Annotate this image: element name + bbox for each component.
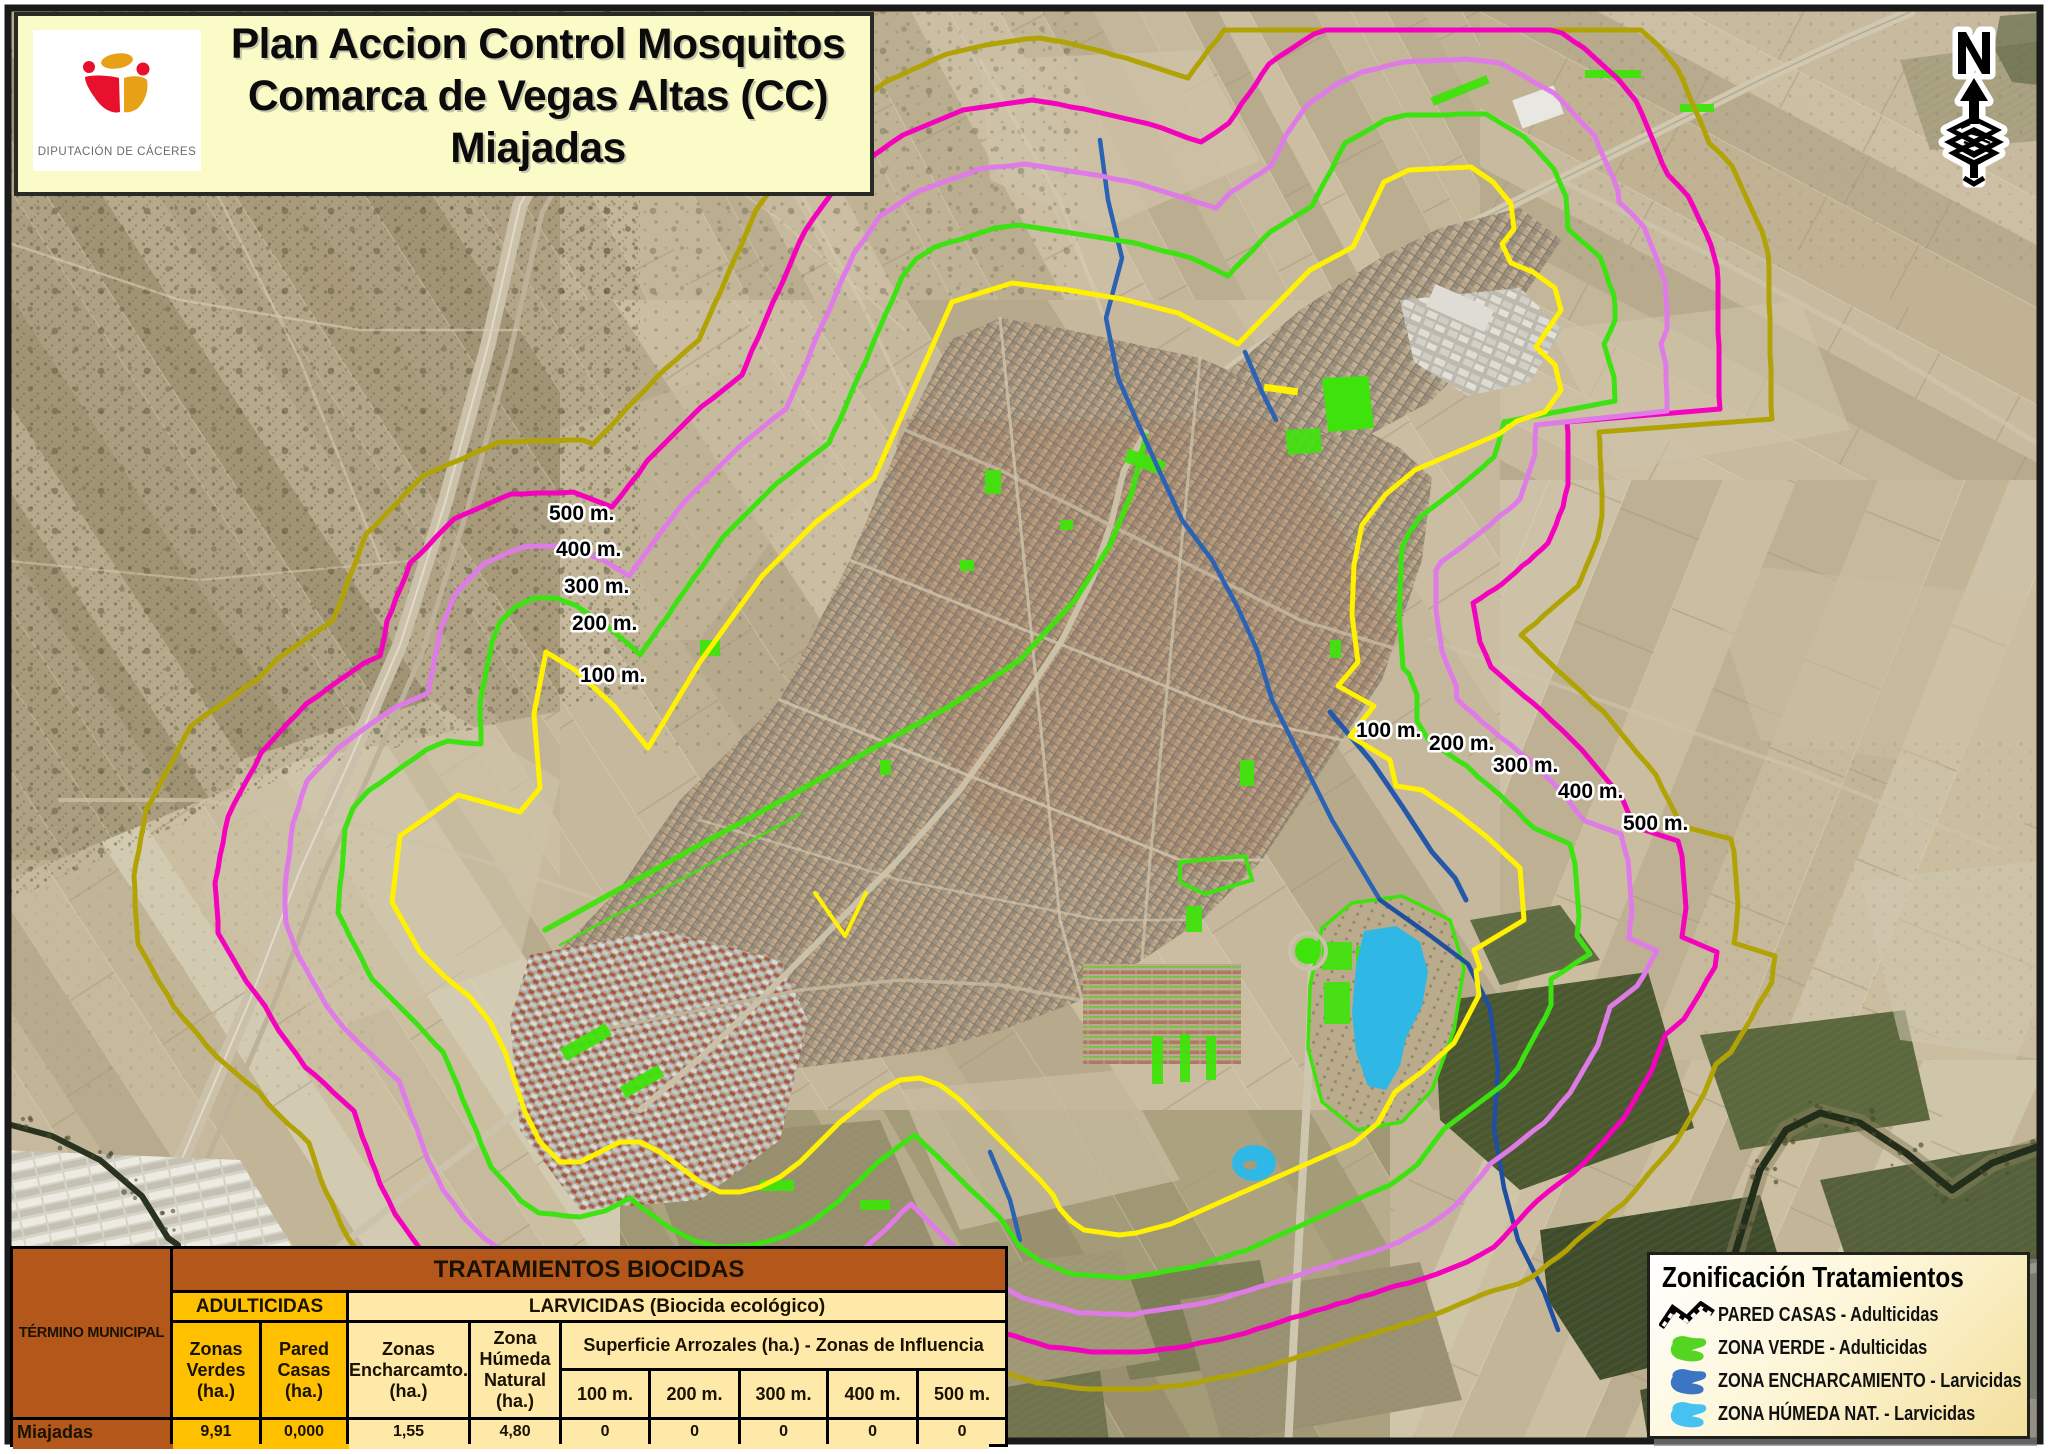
- svg-text:100 m.: 100 m.: [580, 664, 645, 687]
- svg-text:200 m.: 200 m.: [572, 612, 637, 635]
- svg-text:100 m.: 100 m.: [1356, 719, 1421, 742]
- svg-text:500 m.: 500 m.: [549, 502, 614, 525]
- svg-text:500 m.: 500 m.: [1623, 812, 1688, 835]
- svg-text:300 m.: 300 m.: [564, 575, 629, 598]
- svg-text:200 m.: 200 m.: [1429, 732, 1494, 755]
- svg-text:400 m.: 400 m.: [1558, 780, 1623, 803]
- svg-text:DIPUTACIÓN DE CÁCERES: DIPUTACIÓN DE CÁCERES: [38, 145, 197, 158]
- svg-text:300 m.: 300 m.: [1493, 754, 1558, 777]
- svg-text:400 m.: 400 m.: [556, 538, 621, 561]
